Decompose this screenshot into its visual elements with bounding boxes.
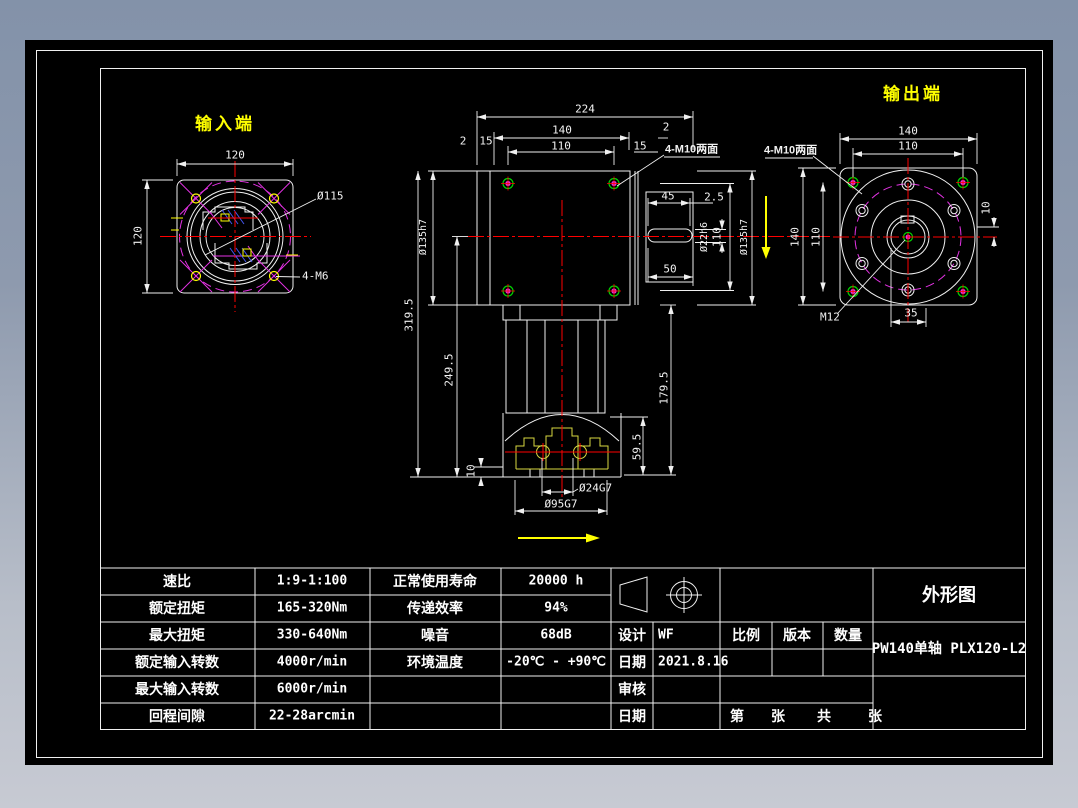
input-view: [142, 159, 316, 312]
spec-value: 1:9-1:100: [277, 575, 347, 588]
dim-shaft-dia: Ø22h6: [700, 222, 710, 252]
dim-out-140-left: 140: [790, 227, 801, 247]
dim-179: 179.5: [659, 371, 670, 404]
dim-spigot: Ø95G7: [544, 499, 577, 510]
perf-value: -20℃ - +90℃: [506, 656, 606, 669]
total-sheet-label: 张: [868, 709, 882, 723]
dim-main-140: 140: [552, 125, 572, 136]
perf-value: 68dB: [540, 629, 571, 642]
dim-2-left: 2: [460, 136, 467, 147]
direction-arrow-down: [762, 196, 771, 259]
spec-value: 4000r/min: [277, 656, 347, 669]
quantity-label: 数量: [834, 628, 862, 642]
drawing-title: 外形图: [922, 586, 976, 604]
perf-label: 传递效率: [407, 601, 463, 615]
main-bolt-holes: [501, 177, 621, 299]
spec-value: 22-28arcmin: [269, 710, 355, 723]
date-value: 2021.8.16: [658, 656, 728, 669]
spec-label: 额定扭矩: [149, 601, 205, 615]
dim-out-10: 10: [981, 201, 992, 214]
date-label: 日期: [618, 655, 646, 669]
spec-label: 额定输入转数: [135, 655, 219, 669]
spec-label: 速比: [163, 574, 191, 588]
dim-15-left: 15: [479, 136, 492, 147]
dim-main-110: 110: [551, 141, 571, 152]
date2-label: 日期: [618, 709, 646, 723]
spec-label: 回程间隙: [149, 709, 205, 723]
perf-label: 噪音: [421, 628, 449, 642]
design-label: 设计: [618, 628, 646, 642]
output-holes-callout: 4-M10两面: [764, 146, 817, 157]
spec-label: 最大输入转数: [135, 682, 219, 696]
dim-flange-right: Ø135h7: [740, 219, 750, 255]
output-end-label: 输出端: [883, 86, 943, 103]
dim-input-holes: 4-M6: [302, 271, 329, 282]
check-label: 审核: [618, 682, 646, 696]
dim-10-main: 10: [466, 464, 477, 477]
main-holes-callout: 4-M10两面: [665, 145, 718, 156]
spec-value: 165-320Nm: [277, 602, 347, 615]
dim-side-110: 110: [712, 227, 723, 247]
design-value: WF: [658, 629, 674, 642]
dim-50: 50: [663, 264, 676, 275]
dim-15-right: 15: [633, 141, 646, 152]
perf-value: 94%: [544, 602, 567, 615]
dim-input-bolt-circle: Ø115: [317, 191, 344, 202]
total-label: 共: [817, 709, 831, 723]
perf-label: 环境温度: [407, 655, 463, 669]
dim-input-width: 120: [225, 150, 245, 161]
dim-out-110-top: 110: [898, 141, 918, 152]
dim-key-offset: 2.5: [704, 192, 724, 203]
model-number: PW140单轴 PLX120-L2: [872, 642, 1026, 656]
perf-label: 正常使用寿命: [393, 574, 477, 588]
dim-out-35: 35: [904, 308, 917, 319]
spec-value: 330-640Nm: [277, 629, 347, 642]
direction-arrow-right: [518, 534, 600, 543]
main-view: [410, 111, 830, 543]
dim-out-110-left: 110: [811, 227, 822, 247]
input-end-label: 输入端: [195, 116, 255, 133]
cad-viewer-screen: 输入端 120 120 Ø115 4-M6 224 140 110 2 15 1…: [0, 0, 1078, 808]
spec-value: 6000r/min: [277, 683, 347, 696]
dim-flange-left: Ø135h7: [419, 219, 429, 255]
dim-overall-width: 224: [575, 104, 595, 115]
version-label: 版本: [783, 628, 811, 642]
dim-out-thread: M12: [820, 312, 840, 323]
scale-label: 比例: [732, 628, 760, 642]
sheet-label: 张: [771, 709, 785, 723]
dim-input-height: 120: [133, 226, 144, 246]
dim-key-length: 45: [661, 191, 674, 202]
sheet-no-label: 第: [730, 709, 744, 723]
dim-59: 59.5: [632, 434, 643, 461]
projection-symbol: [620, 577, 702, 613]
spec-label: 最大扭矩: [149, 628, 205, 642]
perf-value: 20000 h: [529, 575, 584, 588]
dim-out-140-top: 140: [898, 126, 918, 137]
dim-bore: Ø24G7: [579, 483, 612, 494]
dim-total-height: 319.5: [404, 298, 415, 331]
dim-2-right: 2: [663, 122, 670, 133]
dim-249: 249.5: [444, 353, 455, 386]
